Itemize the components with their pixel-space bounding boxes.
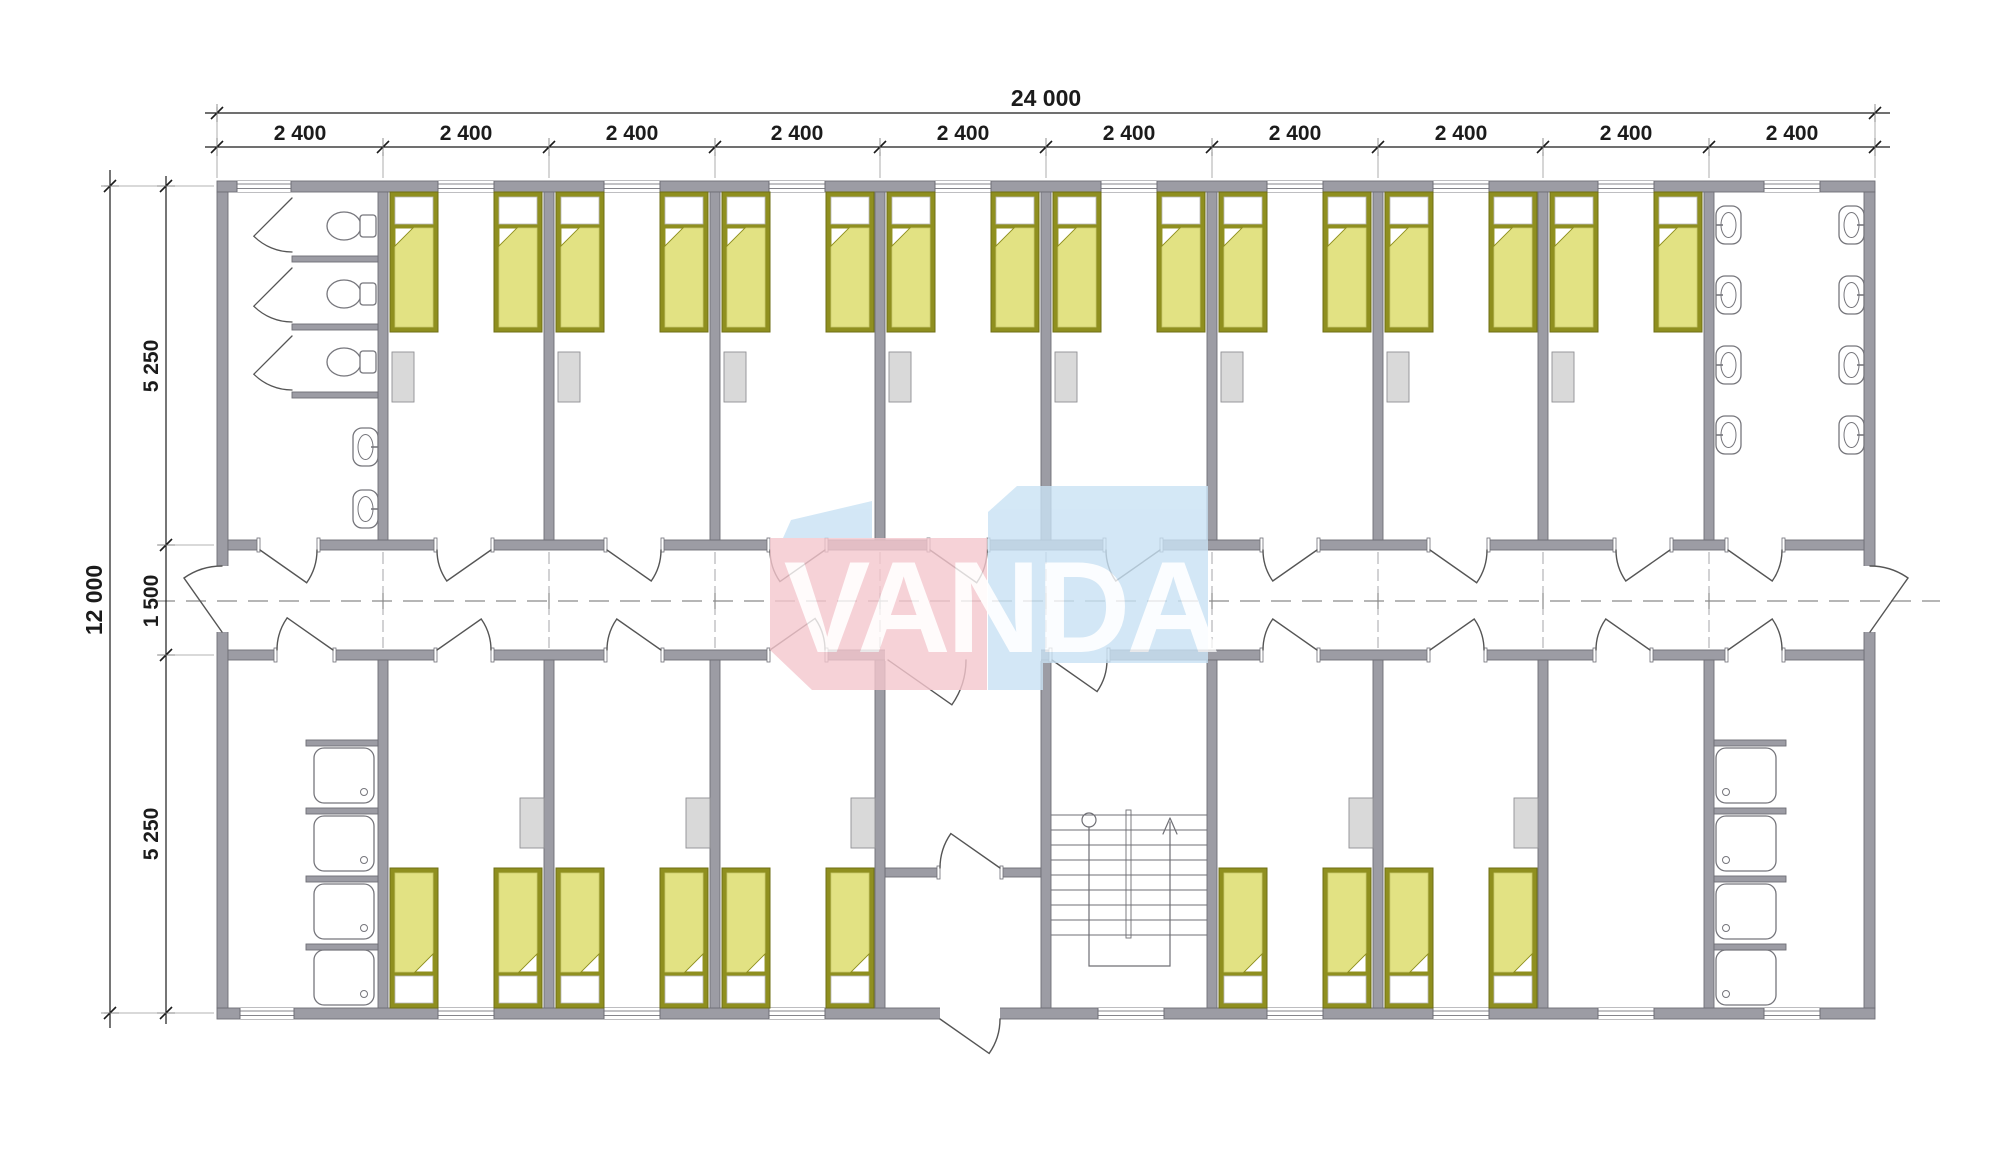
- locker: [1552, 352, 1574, 402]
- shower-stall-wall: [306, 944, 378, 950]
- door-swing: [940, 1019, 1000, 1053]
- shower-stall-wall: [1714, 740, 1786, 746]
- dim-module-4: 2 400: [771, 122, 824, 145]
- window: [1764, 181, 1820, 192]
- door-swing: [437, 550, 491, 581]
- partition-wall-bottom: [378, 660, 388, 1008]
- shower-stall-wall: [306, 740, 378, 746]
- door-opening: [1430, 539, 1487, 551]
- shower-stall-wall: [306, 876, 378, 882]
- bed-pillow: [831, 197, 869, 224]
- bed: [826, 192, 874, 332]
- watermark-blue-wedge: [783, 501, 872, 538]
- door-opening: [277, 649, 333, 661]
- bed-blanket: [1058, 228, 1096, 327]
- door-opening: [1263, 649, 1317, 661]
- door-swing: [437, 619, 491, 650]
- bed-pillow: [499, 197, 537, 224]
- partition-wall-bottom: [1041, 660, 1051, 1008]
- bed-pillow: [1659, 197, 1697, 224]
- door-opening: [1596, 649, 1650, 661]
- bed: [826, 868, 874, 1008]
- bed-pillow: [1494, 197, 1532, 224]
- bed: [494, 868, 542, 1008]
- bed: [1323, 192, 1371, 332]
- window: [769, 181, 825, 192]
- partition-wall-bottom: [710, 660, 720, 1008]
- dim-module-3: 2 400: [606, 122, 659, 145]
- door-opening: [1863, 566, 1876, 632]
- dim-module-10: 2 400: [1766, 122, 1819, 145]
- window: [935, 181, 991, 192]
- bed-blanket: [1390, 228, 1428, 327]
- bed: [1489, 868, 1537, 1008]
- floor-plan-drawing: 24 000 2 400 2 400 2 400 2 400 2 400 2 4…: [0, 0, 2000, 1175]
- bed-blanket: [1555, 228, 1593, 327]
- shower-drain: [1723, 925, 1730, 932]
- bed-blanket: [727, 873, 765, 972]
- toilet-bowl: [327, 212, 361, 240]
- bed-pillow: [727, 197, 765, 224]
- bed-pillow: [996, 197, 1034, 224]
- bed: [1219, 868, 1267, 1008]
- partition-wall-top: [1373, 192, 1383, 540]
- locker: [851, 798, 875, 848]
- locker: [1387, 352, 1409, 402]
- toilet-tank: [360, 351, 376, 373]
- bed: [887, 192, 935, 332]
- window: [1267, 181, 1323, 192]
- bed-pillow: [561, 197, 599, 224]
- watermark-text: VANDA: [784, 534, 1218, 680]
- bed-pillow: [395, 197, 433, 224]
- dim-module-7: 2 400: [1269, 122, 1322, 145]
- door-opening: [1263, 539, 1317, 551]
- door-opening: [1728, 539, 1782, 551]
- window: [240, 1008, 294, 1019]
- bed-blanket: [831, 228, 869, 327]
- bed-blanket: [892, 228, 930, 327]
- toilet-bowl: [327, 348, 361, 376]
- shower-stall-wall: [1714, 944, 1786, 950]
- bed-pillow: [561, 976, 599, 1003]
- wc-stall-wall: [292, 256, 378, 262]
- staircase-layer: [1051, 810, 1207, 966]
- wc-stall-door: [254, 268, 292, 322]
- locker: [1055, 352, 1077, 402]
- shower-drain: [361, 857, 368, 864]
- bed-blanket: [665, 873, 703, 972]
- partition-wall-top: [1704, 192, 1714, 540]
- toilet-tank: [360, 215, 376, 237]
- bed: [991, 192, 1039, 332]
- window: [237, 181, 291, 192]
- bed-blanket: [831, 873, 869, 972]
- dim-seg-bottom: 5 250: [140, 808, 163, 861]
- door-opening: [940, 867, 1000, 878]
- bed-blanket: [727, 228, 765, 327]
- bed-pillow: [1162, 197, 1200, 224]
- dim-total-height: 12 000: [81, 565, 107, 635]
- bed-blanket: [1659, 228, 1697, 327]
- window: [1101, 181, 1157, 192]
- bed-blanket: [561, 228, 599, 327]
- bed-blanket: [561, 873, 599, 972]
- locker: [558, 352, 580, 402]
- shower-stall-wall: [1714, 876, 1786, 882]
- dim-seg-top: 5 250: [140, 340, 163, 393]
- wc-stall-door: [254, 198, 292, 252]
- shower-drain: [361, 789, 368, 796]
- wc-stall-door: [254, 336, 292, 390]
- door-swing: [1616, 550, 1670, 581]
- bed: [1053, 192, 1101, 332]
- door-opening: [940, 1007, 1000, 1020]
- bed: [1385, 192, 1433, 332]
- stair-walking-line: [1089, 822, 1170, 966]
- door-swing: [607, 619, 661, 650]
- bed-pillow: [1494, 976, 1532, 1003]
- door-opening: [216, 566, 229, 632]
- partition-wall-top: [1207, 192, 1217, 540]
- locker: [686, 798, 710, 848]
- bed-pillow: [499, 976, 537, 1003]
- bed-pillow: [665, 976, 703, 1003]
- locker: [1349, 798, 1373, 848]
- door-swing: [940, 834, 1000, 868]
- bed: [1550, 192, 1598, 332]
- wc-stall-wall: [292, 324, 378, 330]
- bed: [660, 192, 708, 332]
- dim-module-8: 2 400: [1435, 122, 1488, 145]
- door-swing: [1728, 619, 1782, 650]
- partition-wall-bottom: [544, 660, 554, 1008]
- bed: [556, 192, 604, 332]
- door-opening: [437, 649, 491, 661]
- bed: [556, 868, 604, 1008]
- window: [604, 1008, 660, 1019]
- door-opening: [1728, 649, 1782, 661]
- window: [1764, 1008, 1820, 1019]
- toilet-tank: [360, 283, 376, 305]
- bed: [390, 192, 438, 332]
- floor-plan-page: 24 000 2 400 2 400 2 400 2 400 2 400 2 4…: [0, 0, 2000, 1175]
- dim-module-5: 2 400: [937, 122, 990, 145]
- window: [438, 1008, 494, 1019]
- dim-seg-corridor: 1 500: [140, 575, 163, 628]
- shower-drain: [1723, 991, 1730, 998]
- window: [438, 181, 494, 192]
- bed-blanket: [395, 873, 433, 972]
- bed-pillow: [831, 976, 869, 1003]
- locker: [1514, 798, 1538, 848]
- toilet-bowl: [327, 280, 361, 308]
- dim-module-9: 2 400: [1600, 122, 1653, 145]
- locker: [889, 352, 911, 402]
- window: [1598, 1008, 1654, 1019]
- bed-blanket: [1328, 873, 1366, 972]
- window: [1598, 181, 1654, 192]
- window: [604, 181, 660, 192]
- bed-blanket: [1224, 228, 1262, 327]
- window: [769, 1008, 825, 1019]
- partition-wall-bottom: [875, 660, 885, 1008]
- window: [1433, 1008, 1489, 1019]
- shower-drain: [361, 991, 368, 998]
- bed-pillow: [727, 976, 765, 1003]
- door-swing: [1728, 550, 1782, 581]
- bed: [660, 868, 708, 1008]
- bed-pillow: [892, 197, 930, 224]
- door-opening: [607, 539, 661, 551]
- bed: [1219, 192, 1267, 332]
- partition-wall-top: [544, 192, 554, 540]
- bed: [1323, 868, 1371, 1008]
- shower-stall-wall: [1714, 808, 1786, 814]
- door-swing: [1430, 619, 1484, 650]
- bed-pillow: [1390, 976, 1428, 1003]
- window: [1267, 1008, 1323, 1019]
- door-opening: [1616, 539, 1670, 551]
- bed-blanket: [1494, 228, 1532, 327]
- window: [1098, 1008, 1164, 1019]
- locker: [1221, 352, 1243, 402]
- locker: [724, 352, 746, 402]
- bed-blanket: [1328, 228, 1366, 327]
- locker: [520, 798, 544, 848]
- stair-stringer: [1126, 810, 1131, 938]
- door-swing: [607, 550, 661, 581]
- partition-wall-bottom: [1704, 660, 1714, 1008]
- locker: [392, 352, 414, 402]
- wc-stall-wall: [292, 392, 378, 398]
- window: [1433, 181, 1489, 192]
- door-opening: [437, 539, 491, 551]
- bed-pillow: [395, 976, 433, 1003]
- partition-wall-top: [378, 192, 388, 540]
- bed-pillow: [1224, 197, 1262, 224]
- partition-wall-bottom: [1207, 660, 1217, 1008]
- door-swing: [1596, 619, 1650, 650]
- bed: [722, 192, 770, 332]
- shower-drain: [361, 925, 368, 932]
- door-swing: [260, 550, 317, 583]
- bed-pillow: [1224, 976, 1262, 1003]
- shower-stall-wall: [306, 808, 378, 814]
- bed: [1654, 192, 1702, 332]
- bed-blanket: [1390, 873, 1428, 972]
- bed-pillow: [1328, 197, 1366, 224]
- partition-wall-top: [875, 192, 885, 540]
- watermark: VANDA: [770, 486, 1217, 690]
- bed: [390, 868, 438, 1008]
- partition-wall-bottom: [1373, 660, 1383, 1008]
- door-swing: [1263, 550, 1317, 581]
- partition-wall-top: [710, 192, 720, 540]
- dim-module-1: 2 400: [274, 122, 327, 145]
- door-opening: [1430, 649, 1484, 661]
- partition-wall-bottom: [1538, 660, 1548, 1008]
- door-swing: [1430, 550, 1487, 583]
- bed-blanket: [1494, 873, 1532, 972]
- bed-pillow: [1058, 197, 1096, 224]
- bed-blanket: [499, 228, 537, 327]
- door-swing: [277, 618, 333, 650]
- dim-module-2: 2 400: [440, 122, 493, 145]
- bed: [722, 868, 770, 1008]
- bed-pillow: [1328, 976, 1366, 1003]
- bed: [1489, 192, 1537, 332]
- partition-wall-top: [1538, 192, 1548, 540]
- bed-blanket: [395, 228, 433, 327]
- bed-blanket: [1224, 873, 1262, 972]
- bed-blanket: [1162, 228, 1200, 327]
- bed: [1385, 868, 1433, 1008]
- bed-blanket: [665, 228, 703, 327]
- bed: [494, 192, 542, 332]
- shower-drain: [1723, 789, 1730, 796]
- bed: [1157, 192, 1205, 332]
- door-swing: [1263, 619, 1317, 650]
- dim-total-width: 24 000: [1011, 85, 1081, 111]
- shower-drain: [1723, 857, 1730, 864]
- door-opening: [260, 539, 317, 551]
- door-opening: [607, 649, 661, 661]
- bed-blanket: [996, 228, 1034, 327]
- bed-pillow: [665, 197, 703, 224]
- bed-pillow: [1390, 197, 1428, 224]
- bed-pillow: [1555, 197, 1593, 224]
- dim-module-6: 2 400: [1103, 122, 1156, 145]
- bed-blanket: [499, 873, 537, 972]
